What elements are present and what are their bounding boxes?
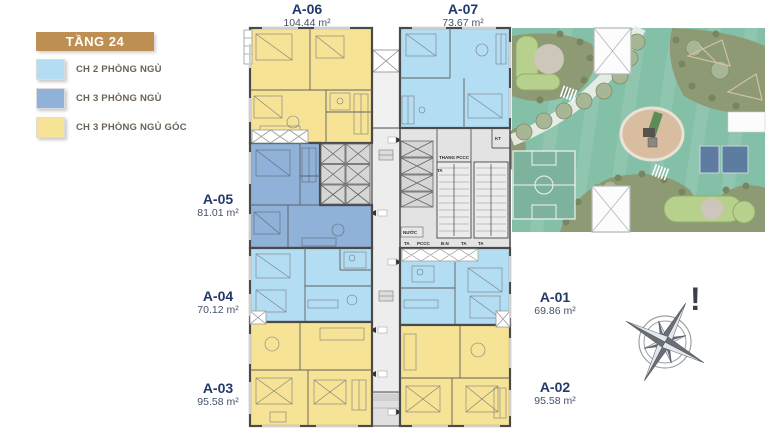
unit-a07-name: A-07 xyxy=(408,2,518,17)
rock-feature-2 xyxy=(701,198,723,220)
unit-a06-area: 104.44 m² xyxy=(252,18,362,29)
unit-a02-name: A-02 xyxy=(500,380,610,395)
unit-a01-name: A-01 xyxy=(500,290,610,305)
unit-a06[interactable] xyxy=(250,28,372,143)
legend-swatch-3br-corner xyxy=(36,117,65,138)
unit-a02-area: 95.58 m² xyxy=(500,396,610,407)
unit-label-a06: A-06 104.44 m² xyxy=(252,2,362,29)
label-ta-2: TA xyxy=(404,241,410,246)
legend-swatch-2br xyxy=(36,59,65,80)
unit-a03-area: 95.58 m² xyxy=(163,397,273,408)
floorplan-page: THANG PCCC TA KT NƯỚC TA PCCC Đ.N TA TA xyxy=(0,0,780,439)
label-kt: KT xyxy=(495,136,501,141)
playground xyxy=(621,108,683,160)
legend: TẦNG 24 CH 2 PHÒNG NGỦ CH 3 PHÒNG NGỦ CH… xyxy=(36,32,226,138)
label-ta-1: TA xyxy=(437,168,443,173)
basketball-court xyxy=(513,151,575,219)
sport-courts xyxy=(700,146,748,173)
unit-label-a04: A-04 70.12 m² xyxy=(163,289,273,316)
unit-label-a02: A-02 95.58 m² xyxy=(500,380,610,407)
north-mark: ! xyxy=(690,281,701,318)
unit-label-a05: A-05 81.01 m² xyxy=(163,192,273,219)
unit-a06-name: A-06 xyxy=(252,2,362,17)
label-water: NƯỚC xyxy=(403,228,418,235)
unit-a04-area: 70.12 m² xyxy=(163,305,273,316)
compass-long-points xyxy=(605,282,724,401)
roof-garden xyxy=(506,28,765,232)
legend-item-2br: CH 2 PHÒNG NGỦ xyxy=(36,59,226,80)
unit-a05-area: 81.01 m² xyxy=(163,208,273,219)
unit-a07[interactable] xyxy=(400,28,510,128)
shaft-strip xyxy=(402,249,478,261)
unit-a07-area: 73.67 m² xyxy=(408,18,518,29)
label-pccc: PCCC xyxy=(417,241,431,246)
legend-item-3br: CH 3 PHÒNG NGỦ xyxy=(36,88,226,109)
floor-title: TẦNG 24 xyxy=(36,32,154,51)
unit-a02[interactable] xyxy=(400,325,510,426)
unit-a05-name: A-05 xyxy=(163,192,273,207)
unit-label-a01: A-01 69.86 m² xyxy=(500,290,610,317)
compass-rose xyxy=(605,282,724,401)
unit-a04-name: A-04 xyxy=(163,289,273,304)
unit-a03[interactable] xyxy=(250,322,372,426)
unit-a03-name: A-03 xyxy=(163,381,273,396)
ac-ledge-bridge xyxy=(373,50,399,72)
unit-a01-area: 69.86 m² xyxy=(500,306,610,317)
elevator-bank-right xyxy=(401,141,433,207)
unit-label-a03: A-03 95.58 m² xyxy=(163,381,273,408)
legend-label-3br: CH 3 PHÒNG NGỦ xyxy=(76,93,162,104)
label-fire-stairs: THANG PCCC xyxy=(439,155,470,160)
rock-feature-1 xyxy=(534,44,564,74)
legend-label-2br: CH 2 PHÒNG NGỦ xyxy=(76,64,162,75)
unit-a03-shape[interactable] xyxy=(250,322,372,426)
legend-swatch-3br xyxy=(36,88,65,109)
label-dn: Đ.N xyxy=(441,241,449,246)
label-ta-4: TA xyxy=(478,241,484,246)
unit-label-a07: A-07 73.67 m² xyxy=(408,2,518,29)
legend-item-3br-corner: CH 3 PHÒNG NGỦ GÓC xyxy=(36,117,226,138)
label-ta-3: TA xyxy=(461,241,467,246)
legend-label-3br-corner: CH 3 PHÒNG NGỦ GÓC xyxy=(76,122,187,133)
unit-a02-shape[interactable] xyxy=(400,325,510,426)
